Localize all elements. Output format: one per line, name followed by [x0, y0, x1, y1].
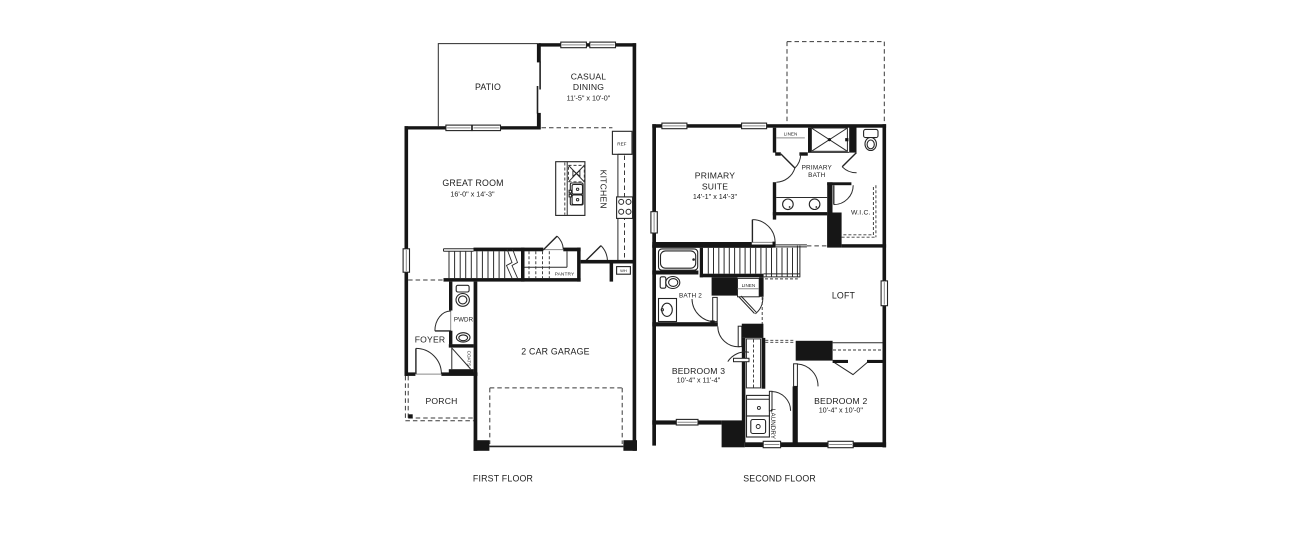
svg-text:LINEN: LINEN: [742, 283, 756, 288]
svg-text:16'-0" x 14'-3": 16'-0" x 14'-3": [450, 190, 495, 199]
svg-text:REF: REF: [617, 142, 626, 147]
svg-text:BATH: BATH: [808, 172, 826, 179]
svg-text:LINEN: LINEN: [784, 132, 798, 137]
svg-text:CASUAL: CASUAL: [571, 72, 607, 82]
svg-text:PANTRY: PANTRY: [555, 272, 575, 278]
svg-text:FOYER: FOYER: [415, 335, 446, 345]
svg-text:PRIMARY: PRIMARY: [695, 171, 735, 181]
svg-text:FIRST FLOOR: FIRST FLOOR: [473, 473, 533, 483]
svg-text:2 CAR GARAGE: 2 CAR GARAGE: [521, 347, 589, 357]
svg-text:BATH 2: BATH 2: [679, 293, 702, 300]
svg-text:SUITE: SUITE: [702, 182, 728, 192]
svg-text:11'-5" x 10'-0": 11'-5" x 10'-0": [567, 93, 611, 102]
svg-text:SECOND FLOOR: SECOND FLOOR: [743, 473, 816, 483]
svg-text:BEDROOM 3: BEDROOM 3: [672, 366, 725, 376]
svg-text:PRIMARY: PRIMARY: [802, 165, 833, 172]
svg-text:W.I.C.: W.I.C.: [851, 210, 871, 217]
svg-text:PWDR: PWDR: [454, 317, 474, 324]
svg-text:10'-4" x 10'-0": 10'-4" x 10'-0": [819, 406, 864, 415]
svg-text:LAUNDRY: LAUNDRY: [769, 409, 776, 439]
svg-text:BEDROOM 2: BEDROOM 2: [814, 396, 867, 406]
svg-text:14'-1" x 14'-3": 14'-1" x 14'-3": [693, 192, 738, 201]
svg-text:WH: WH: [620, 268, 627, 273]
svg-text:KITCHEN: KITCHEN: [599, 170, 609, 209]
svg-text:LOFT: LOFT: [832, 291, 856, 301]
svg-text:COATS: COATS: [466, 351, 471, 366]
svg-text:PATIO: PATIO: [475, 82, 501, 92]
svg-text:PORCH: PORCH: [425, 396, 457, 406]
svg-text:10'-4" x 11'-4": 10'-4" x 11'-4": [677, 376, 721, 385]
svg-text:DINING: DINING: [573, 82, 604, 92]
svg-text:GREAT ROOM: GREAT ROOM: [442, 178, 503, 188]
